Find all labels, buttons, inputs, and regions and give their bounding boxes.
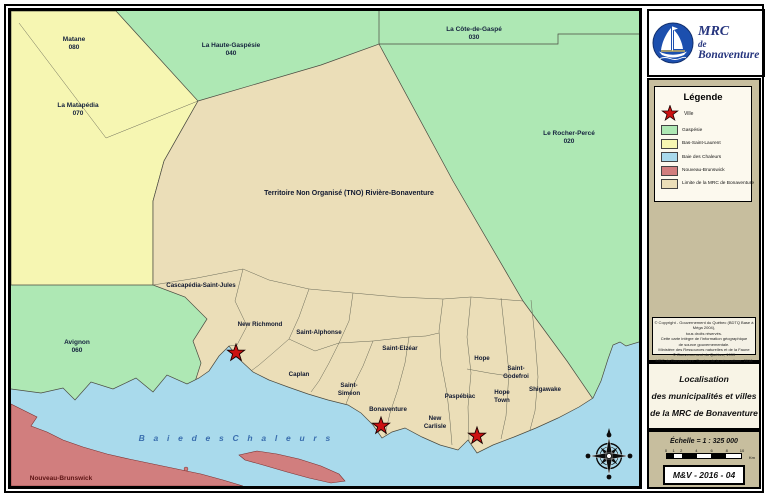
swatch-limite-mrc	[661, 179, 678, 189]
label-cote-de-gaspe: La Côte-de-Gaspé	[446, 26, 502, 33]
label-nouveau-brunswick: Nouveau-Brunswick	[30, 475, 93, 482]
legend-ville-row: Ville	[661, 105, 745, 122]
label-new-richmond: New Richmond	[238, 321, 283, 328]
label-tno: Territoire Non Organisé (TNO) Rivière-Bo…	[264, 190, 434, 197]
scale-ticks: 0 1 2 4 6 8 10	[666, 448, 742, 453]
ville-star-icon	[661, 105, 679, 122]
logo-box: MRC de Bonaventure	[647, 9, 765, 77]
legend-ville-label: Ville	[684, 111, 693, 117]
copyright-box: © Copyright - Gouvernement du Québec (BD…	[652, 317, 756, 355]
map-title-line1: Localisation	[649, 374, 759, 384]
label-saint-elzear: Saint-Elzéar	[382, 345, 418, 352]
copyright-line: Cette carte intègre de l'information géo…	[653, 336, 755, 341]
map-sheet: Matane 080 La Matapédia 070 La Haute-Gas…	[0, 0, 768, 497]
legend-item-baie-des-chaleurs: Baie des Chaleurs	[661, 152, 745, 162]
scale-panel: Échelle = 1 : 325 000 0 1 2 4 6 8 10	[647, 430, 761, 489]
label-bonaventure: Bonaventure	[369, 406, 407, 413]
label-saint-simeon-1: Saint-	[340, 382, 357, 389]
label-matapedia: La Matapédia	[57, 102, 99, 109]
label-saint-simeon-2: Siméon	[338, 390, 361, 397]
municipalities-map-svg: Matane 080 La Matapédia 070 La Haute-Gas…	[11, 11, 639, 486]
legend-item-gaspesie: Gaspésie	[661, 125, 745, 135]
mrc-sailboat-logo-icon	[651, 21, 695, 65]
scale-bar: 0 1 2 4 6 8 10 Km	[666, 448, 742, 459]
label-cascapedia: Cascapédia-Saint-Jules	[166, 282, 236, 289]
label-saint-godefroi-1: Saint-	[507, 365, 524, 372]
legend-item-nouveau-brunswick: Nouveau-Brunswick	[661, 166, 745, 176]
map-area: Matane 080 La Matapédia 070 La Haute-Gas…	[8, 8, 642, 489]
label-matane-code: 080	[69, 44, 80, 51]
map-title-line3: de la MRC de Bonaventure	[649, 408, 759, 418]
label-avignon: Avignon	[64, 339, 90, 346]
label-paspebiac: Paspébiac	[445, 393, 476, 400]
label-hope-town-2: Town	[494, 397, 510, 404]
label-avignon-code: 060	[72, 347, 83, 354]
label-haute-gaspesie: La Haute-Gaspésie	[202, 42, 261, 49]
swatch-gaspesie	[661, 125, 678, 135]
logo-text: MRC de Bonaventure	[698, 25, 759, 61]
label-caplan: Caplan	[289, 371, 310, 378]
label-matane: Matane	[63, 36, 86, 43]
label-hope: Hope	[474, 355, 490, 362]
scale-bar-segments	[666, 453, 742, 459]
legend-item-bas-saint-laurent: Bas-Saint-Laurent	[661, 139, 745, 149]
label-haute-gaspesie-code: 040	[226, 50, 237, 57]
copyright-line: © Copyright - Gouvernement du Québec (BD…	[653, 320, 755, 331]
swatch-baie-des-chaleurs	[661, 152, 678, 162]
label-saint-alphonse: Saint-Alphonse	[296, 329, 342, 336]
scale-label: Échelle = 1 : 325 000	[649, 438, 759, 445]
legend-box: Légende Ville Gaspésie Bas-Saint-Laurent	[654, 86, 752, 202]
map-code-box: M&V - 2016 - 04	[663, 465, 745, 485]
label-matapedia-code: 070	[73, 110, 84, 117]
map-title-box: Localisation des municipalités et villes…	[647, 362, 761, 430]
label-hope-town-1: Hope	[494, 389, 510, 396]
scale-unit: Km	[749, 455, 755, 460]
label-cote-de-gaspe-code: 030	[469, 34, 480, 41]
label-shigawake: Shigawake	[529, 386, 562, 393]
legend-panel: Légende Ville Gaspésie Bas-Saint-Laurent	[647, 78, 761, 362]
logo-name: Bonaventure	[698, 49, 759, 61]
legend-item-limite-mrc: Limite de la MRC de Bonaventure	[661, 179, 745, 189]
map-title-line2: des municipalités et villes	[649, 391, 759, 401]
label-baie-des-chaleurs: B a i e d e s C h a l e u r s	[139, 433, 334, 443]
swatch-nouveau-brunswick	[661, 166, 678, 176]
logo-org: MRC	[698, 25, 759, 40]
nb-islet	[184, 467, 188, 471]
label-rocher-perce: Le Rocher-Percé	[543, 130, 595, 137]
label-saint-godefroi-2: Godefroi	[503, 373, 529, 380]
label-new-carlisle-1: New	[429, 415, 442, 422]
label-rocher-perce-code: 020	[564, 138, 575, 145]
sidebar: MRC de Bonaventure Légende Ville Gaspési…	[647, 9, 761, 489]
logo-de: de	[698, 40, 759, 49]
legend-title: Légende	[655, 92, 751, 103]
swatch-bas-saint-laurent	[661, 139, 678, 149]
label-new-carlisle-2: Carlisle	[424, 423, 447, 430]
